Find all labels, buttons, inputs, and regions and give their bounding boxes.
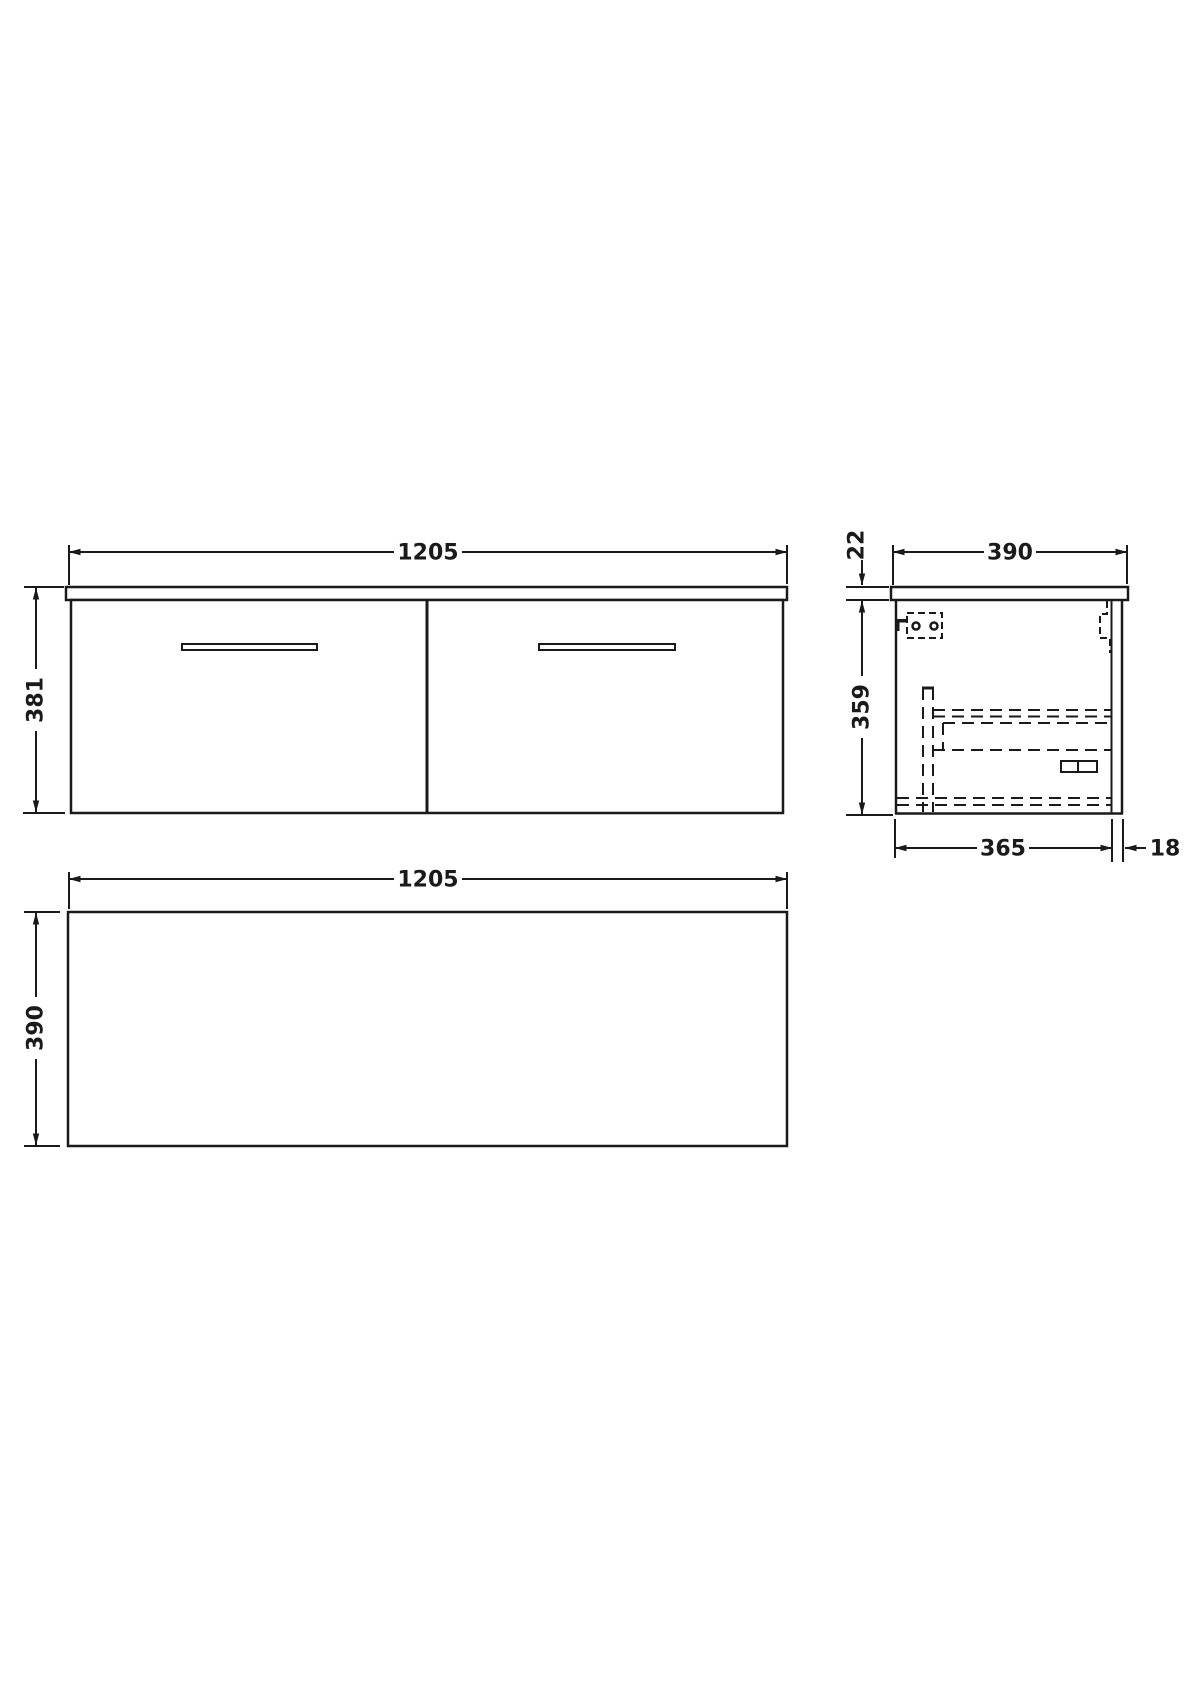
front-width-label: 1205	[397, 541, 458, 566]
front-height-dimension: 381	[23, 587, 65, 813]
front-width-dimension: 1205	[69, 540, 787, 585]
wall-bracket-left	[896, 613, 942, 638]
technical-drawing-sheet: 1205 381	[0, 0, 1200, 1698]
plan-width-label: 1205	[397, 868, 458, 893]
plan-width-dimension: 1205	[69, 867, 787, 909]
front-view: 1205 381	[23, 540, 787, 813]
bracket-screw-hole	[931, 623, 938, 630]
side-depth-label: 390	[987, 541, 1033, 566]
side-worktop	[891, 587, 1128, 600]
bracket-screw-hole	[913, 623, 920, 630]
drawer-hidden-detail	[897, 688, 1111, 812]
front-worktop	[66, 587, 787, 600]
wall-bracket-right	[1100, 601, 1112, 652]
side-bottom-dimensions: 365 18	[895, 819, 1180, 862]
plan-worktop-outline	[68, 912, 787, 1146]
back-panel-label: 18	[1150, 837, 1181, 862]
plan-depth-label: 390	[24, 1005, 49, 1051]
cabinet-depth-label: 365	[980, 837, 1026, 862]
bracket-arm	[896, 619, 900, 631]
plan-depth-dimension: 390	[23, 912, 60, 1146]
side-depth-dimension: 390	[893, 540, 1127, 585]
side-height-dimension: 359	[846, 601, 893, 815]
side-height-label: 359	[850, 684, 875, 730]
worktop-thickness-label: 22	[845, 530, 870, 561]
drawing-svg: 1205 381	[0, 0, 1200, 1698]
side-view: 390 22 359 365 18	[845, 530, 1181, 862]
front-height-label: 381	[24, 677, 49, 723]
worktop-thickness-dimension: 22	[845, 530, 890, 600]
plan-view: 1205 390	[23, 867, 787, 1146]
